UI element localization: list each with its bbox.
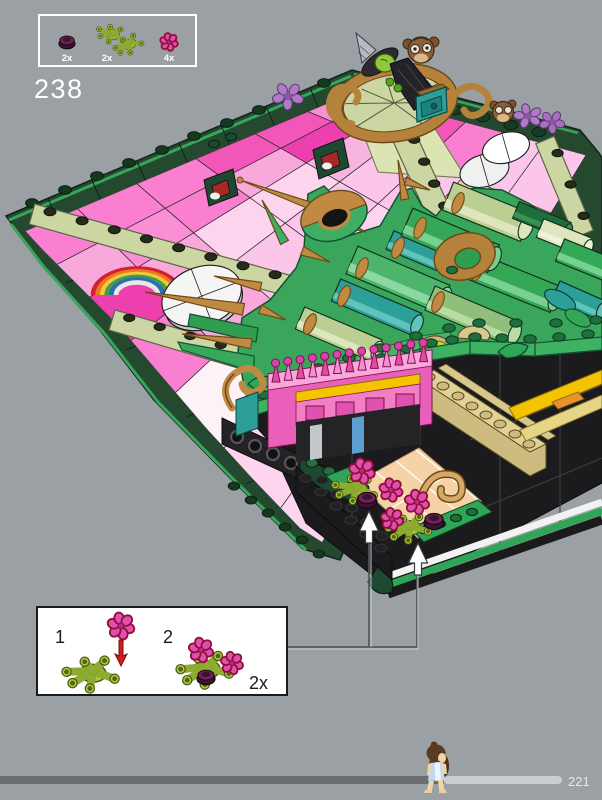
svg-text:1: 1 [55,627,65,647]
svg-text:221: 221 [568,774,590,789]
svg-text:2x: 2x [249,673,268,693]
svg-text:2x: 2x [102,53,113,64]
svg-text:238: 238 [34,74,84,104]
svg-text:2x: 2x [62,53,73,64]
svg-text:2: 2 [163,627,173,647]
svg-text:4x: 4x [164,53,175,64]
